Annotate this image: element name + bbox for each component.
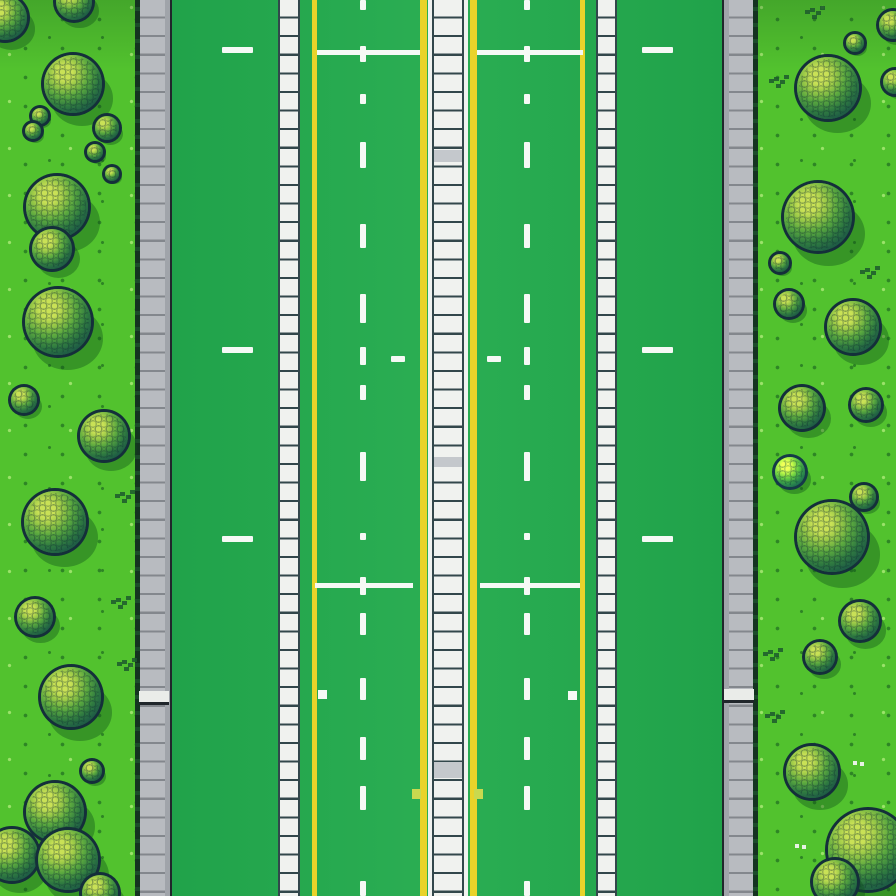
lane-tick <box>222 347 253 353</box>
tree-foliage-texture <box>778 293 800 315</box>
sidewalk-strip <box>278 0 300 896</box>
tree <box>797 57 859 119</box>
median-rung-gray <box>434 457 462 467</box>
lane-dash <box>360 224 366 248</box>
tree-foliage-texture <box>107 169 117 179</box>
tree <box>846 34 864 52</box>
lane-dash <box>360 678 366 700</box>
tree <box>781 387 823 429</box>
tree-foliage-texture <box>777 459 803 485</box>
median-yellow <box>420 0 427 896</box>
tree-foliage-texture <box>829 303 877 351</box>
lane-crossing-line <box>317 50 420 55</box>
grass-speck <box>770 712 775 716</box>
tree-foliage-texture <box>13 389 35 411</box>
tree <box>841 602 879 640</box>
tree-foliage-texture <box>84 877 116 896</box>
tree <box>25 289 91 355</box>
tree-foliage-texture <box>82 414 126 458</box>
lane-dash <box>524 347 530 365</box>
lane-tick <box>642 536 673 542</box>
grass-speck-white <box>853 761 857 765</box>
tree <box>80 412 128 460</box>
median-rung-gray <box>434 762 462 778</box>
curb-ramp <box>139 691 169 705</box>
yellow-line <box>580 0 585 896</box>
road-dot-yellow <box>474 789 483 799</box>
grass-speck-white <box>795 844 799 848</box>
lane-dash <box>524 452 530 481</box>
tree-foliage-texture <box>783 389 821 427</box>
lane-dash <box>360 881 366 896</box>
lane-dash <box>524 142 530 168</box>
tree <box>32 229 72 269</box>
lane-tick <box>642 47 673 53</box>
lane-dash <box>524 881 530 896</box>
tree <box>11 387 37 413</box>
grass-speck <box>865 268 870 272</box>
lane-crossing-line <box>315 583 413 588</box>
curb-ramp <box>724 689 754 703</box>
tree <box>95 116 119 140</box>
tree-foliage-texture <box>34 110 46 122</box>
curb-left <box>135 0 172 896</box>
tree-foliage-texture <box>853 392 879 418</box>
lane-dash <box>360 142 366 168</box>
tree-foliage-texture <box>0 831 36 879</box>
tree <box>775 457 805 487</box>
tree <box>776 291 802 317</box>
tree-foliage-texture <box>89 146 101 158</box>
tree <box>813 860 857 896</box>
tree-foliage-texture <box>815 862 855 896</box>
lane-tick <box>222 47 253 53</box>
tree <box>25 123 41 139</box>
tree-foliage-texture <box>34 231 70 267</box>
road-dot-white <box>568 691 577 700</box>
tree-foliage-texture <box>799 504 865 570</box>
curb-shade <box>724 0 729 896</box>
lane-dash <box>360 533 366 540</box>
median-edge <box>464 0 468 896</box>
tree <box>827 301 879 353</box>
lane-dash <box>524 94 530 104</box>
lane-dash <box>524 385 530 400</box>
grass-speck <box>768 650 773 654</box>
lane-crossing-line <box>477 50 583 55</box>
grass-speck <box>116 598 121 602</box>
tree-foliage-texture <box>843 604 877 638</box>
tree-foliage-texture <box>46 57 100 111</box>
lane-dash <box>524 224 530 248</box>
tree <box>105 167 119 181</box>
tree-foliage-texture <box>773 256 787 270</box>
yellow-line <box>312 0 317 896</box>
tree-foliage-texture <box>97 118 117 138</box>
lane-dash <box>524 613 530 635</box>
lane-dash <box>360 613 366 635</box>
tree <box>851 390 881 420</box>
game-scene[interactable] <box>0 0 896 896</box>
median-rung-gray <box>434 150 462 162</box>
lane-dash <box>360 94 366 104</box>
tree-foliage-texture <box>788 748 836 796</box>
lane-tick <box>222 536 253 542</box>
tree-foliage-texture <box>27 291 89 353</box>
tree <box>82 761 102 781</box>
tree-foliage-texture <box>28 178 86 236</box>
tree-foliage-texture <box>786 185 850 249</box>
lane-crossing-line <box>480 583 580 588</box>
tree <box>24 491 86 553</box>
lane-dash <box>360 294 366 323</box>
tree-foliage-texture <box>26 493 84 551</box>
lane-dash <box>524 0 530 10</box>
lane-dash <box>524 294 530 323</box>
tree <box>41 667 101 727</box>
tree <box>17 599 53 635</box>
lane-dash <box>524 533 530 540</box>
lane-dash <box>360 786 366 810</box>
tree <box>852 485 876 509</box>
tree <box>32 108 48 124</box>
tree-foliage-texture <box>43 669 99 725</box>
tree-foliage-texture <box>58 0 90 18</box>
lane-dash <box>524 786 530 810</box>
tree-foliage-texture <box>885 72 896 92</box>
road-dot-white <box>318 690 327 699</box>
tree-foliage-texture <box>854 487 874 507</box>
tree <box>771 254 789 272</box>
lane-dash <box>360 452 366 481</box>
tree-foliage-texture <box>27 125 39 137</box>
tree-foliage-texture <box>848 36 862 50</box>
tree <box>805 642 835 672</box>
lane-dash <box>360 0 366 10</box>
tree-foliage-texture <box>84 763 100 779</box>
lane-dash <box>360 347 366 365</box>
road-dot-yellow <box>412 789 421 799</box>
tree <box>786 746 838 798</box>
lane-dash <box>360 385 366 400</box>
tree <box>44 55 102 113</box>
lane-dash <box>524 678 530 700</box>
curb-grass-edge <box>753 0 758 896</box>
median-fill <box>434 0 462 896</box>
sidewalk-strip <box>596 0 617 896</box>
grass-speck <box>774 77 779 81</box>
curb-right <box>722 0 758 896</box>
grass-speck <box>120 492 125 496</box>
lane-dash <box>360 737 366 760</box>
tree <box>87 144 103 160</box>
lane-tick <box>642 347 673 353</box>
lane-mini-tick <box>391 356 405 362</box>
tree-foliage-texture <box>0 0 25 38</box>
grass-speck <box>810 8 815 12</box>
grass-speck <box>122 660 127 664</box>
tree <box>797 502 867 572</box>
median-yellow <box>470 0 477 896</box>
tree <box>784 183 852 251</box>
lane-dash <box>524 737 530 760</box>
tree-foliage-texture <box>19 601 51 633</box>
tree-foliage-texture <box>881 13 896 37</box>
tree-foliage-texture <box>807 644 833 670</box>
curb-road-border <box>170 0 172 896</box>
tree-foliage-texture <box>799 59 857 117</box>
lane-mini-tick <box>487 356 501 362</box>
